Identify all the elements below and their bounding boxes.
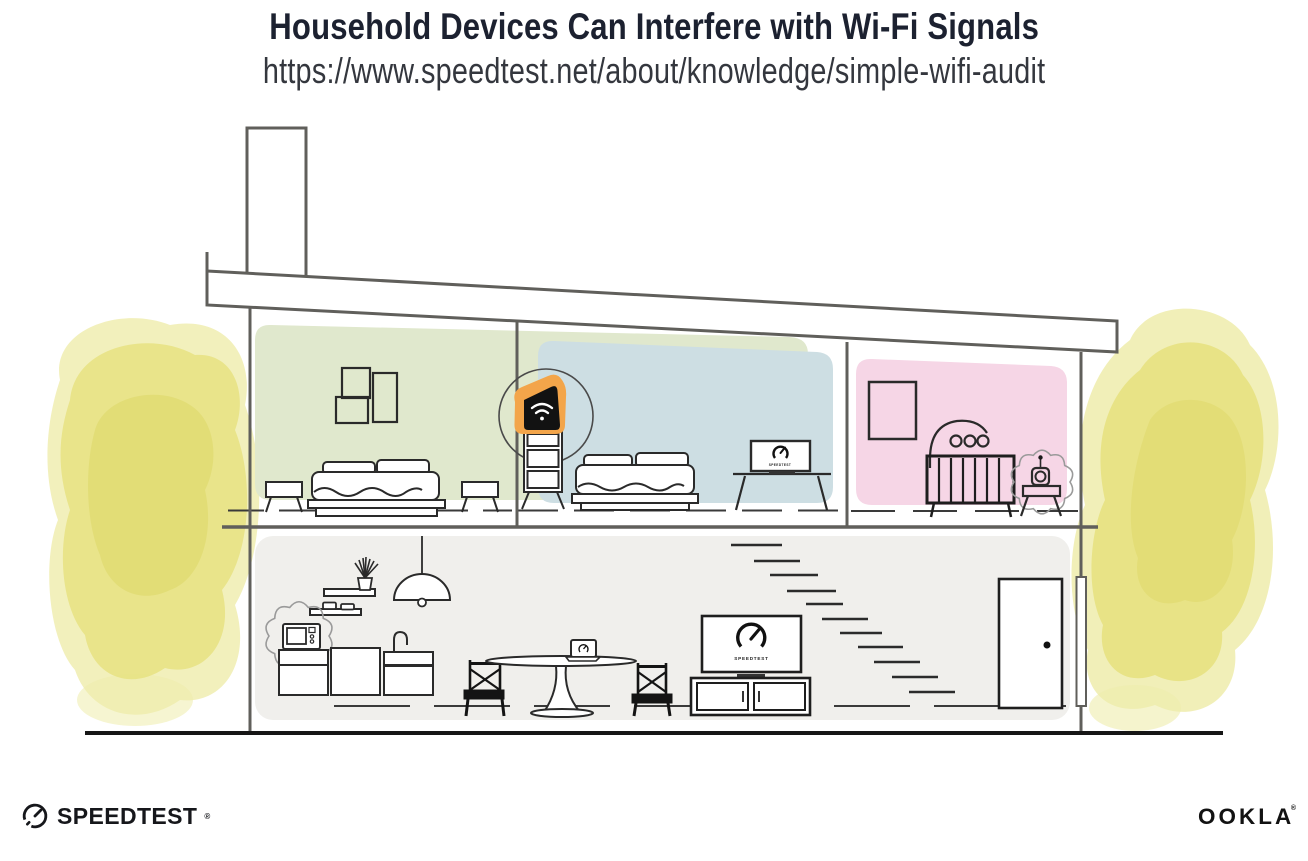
speedtest-logo: SPEEDTEST ® xyxy=(20,801,210,831)
chimney xyxy=(247,128,306,280)
tv-screen-label: SPEEDTEST xyxy=(734,656,769,661)
desk-monitor-screen-label: SPEEDTEST xyxy=(769,463,792,467)
watercolor-blob-left xyxy=(47,318,259,726)
front-door xyxy=(999,579,1062,708)
tv: SPEEDTEST xyxy=(702,616,801,678)
speedtest-registered-mark: ® xyxy=(204,812,210,821)
house-illustration: SPEEDTEST xyxy=(0,0,1308,861)
ookla-logo: OOKLA ® xyxy=(1198,804,1296,830)
ookla-wordmark: OOKLA xyxy=(1198,804,1294,830)
watercolor-blob-right xyxy=(1072,309,1279,731)
door-knob xyxy=(1044,642,1051,649)
microwave xyxy=(283,624,320,649)
tv-console xyxy=(691,678,810,715)
infographic-page: Household Devices Can Interfere with Wi-… xyxy=(0,0,1308,861)
bedroom2-bed xyxy=(572,453,698,510)
desk-monitor: SPEEDTEST xyxy=(751,441,810,475)
speedtest-gauge-icon xyxy=(20,801,50,831)
table-laptop xyxy=(566,640,600,661)
bedroom1-bed xyxy=(308,460,445,516)
speedtest-wordmark: SPEEDTEST xyxy=(57,803,197,830)
